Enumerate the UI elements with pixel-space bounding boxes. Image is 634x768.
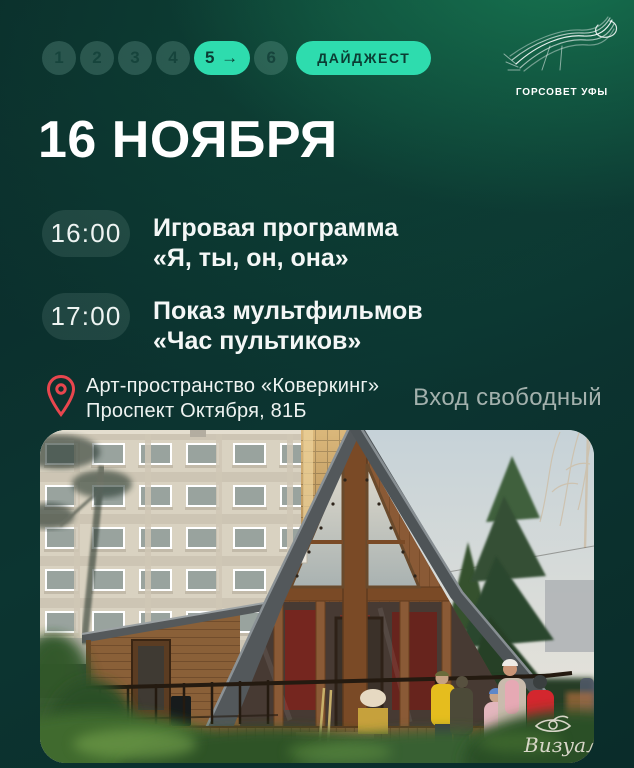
location-name: Арт-пространство «Коверкинг» — [86, 374, 379, 399]
map-pin-icon — [46, 374, 76, 424]
bird-logo-icon — [502, 67, 622, 84]
location-text: Арт-пространство «Коверкинг» Проспект Ок… — [86, 374, 379, 424]
nav-step-4: 4 — [156, 41, 190, 75]
event-title-line1: Игровая программа — [153, 213, 398, 243]
schedule-list: 16:00 Игровая программа «Я, ты, он, она»… — [42, 210, 423, 356]
photo-distant-building — [545, 580, 594, 652]
nav-step-6: 6 — [254, 41, 288, 75]
time-badge: 17:00 — [42, 293, 130, 340]
nav-step-5-active: 5 → — [194, 41, 250, 75]
nav-step-3: 3 — [118, 41, 152, 75]
poster: 1 2 3 4 5 → 6 ДАЙДЖЕСТ ГОРСОВЕТ УФЫ 16 Н… — [0, 0, 634, 768]
entry-note: Вход свободный — [413, 384, 602, 412]
schedule-row: 17:00 Показ мультфильмов «Час пультиков» — [42, 293, 423, 356]
logo-text: ГОРСОВЕТ УФЫ — [498, 87, 626, 98]
event-title-line2: «Я, ты, он, она» — [153, 243, 398, 273]
watermark-text: Визуал — [523, 733, 594, 757]
pagination-nav: 1 2 3 4 5 → 6 ДАЙДЖЕСТ — [42, 41, 431, 75]
location-block: Арт-пространство «Коверкинг» Проспект Ок… — [46, 374, 379, 424]
event-title: Показ мультфильмов «Час пультиков» — [153, 293, 423, 356]
nav-step-1: 1 — [42, 41, 76, 75]
schedule-row: 16:00 Игровая программа «Я, ты, он, она» — [42, 210, 423, 273]
event-title-line2: «Час пультиков» — [153, 326, 423, 356]
gorsovet-logo: ГОРСОВЕТ УФЫ — [498, 14, 626, 98]
nav-step-2: 2 — [80, 41, 114, 75]
location-address: Проспект Октября, 81Б — [86, 399, 379, 424]
event-photo: Визуал — [40, 430, 594, 763]
event-title-line1: Показ мультфильмов — [153, 296, 423, 326]
date-title: 16 НОЯБРЯ — [38, 110, 338, 170]
digest-badge: ДАЙДЖЕСТ — [296, 41, 431, 75]
time-badge: 16:00 — [42, 210, 130, 257]
event-title: Игровая программа «Я, ты, он, она» — [153, 210, 398, 273]
